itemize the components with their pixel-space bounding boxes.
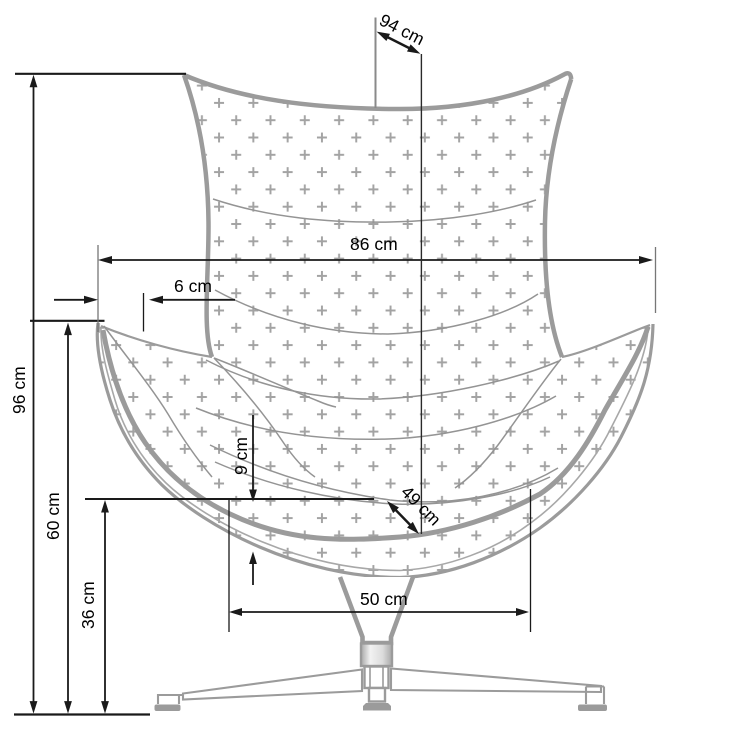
- svg-text:6 cm: 6 cm: [174, 276, 212, 296]
- svg-text:50 cm: 50 cm: [360, 589, 408, 609]
- svg-text:86 cm: 86 cm: [350, 234, 398, 254]
- svg-text:9 cm: 9 cm: [231, 437, 251, 475]
- svg-text:60 cm: 60 cm: [43, 492, 63, 540]
- svg-text:96 cm: 96 cm: [9, 366, 29, 414]
- svg-text:36 cm: 36 cm: [78, 581, 98, 629]
